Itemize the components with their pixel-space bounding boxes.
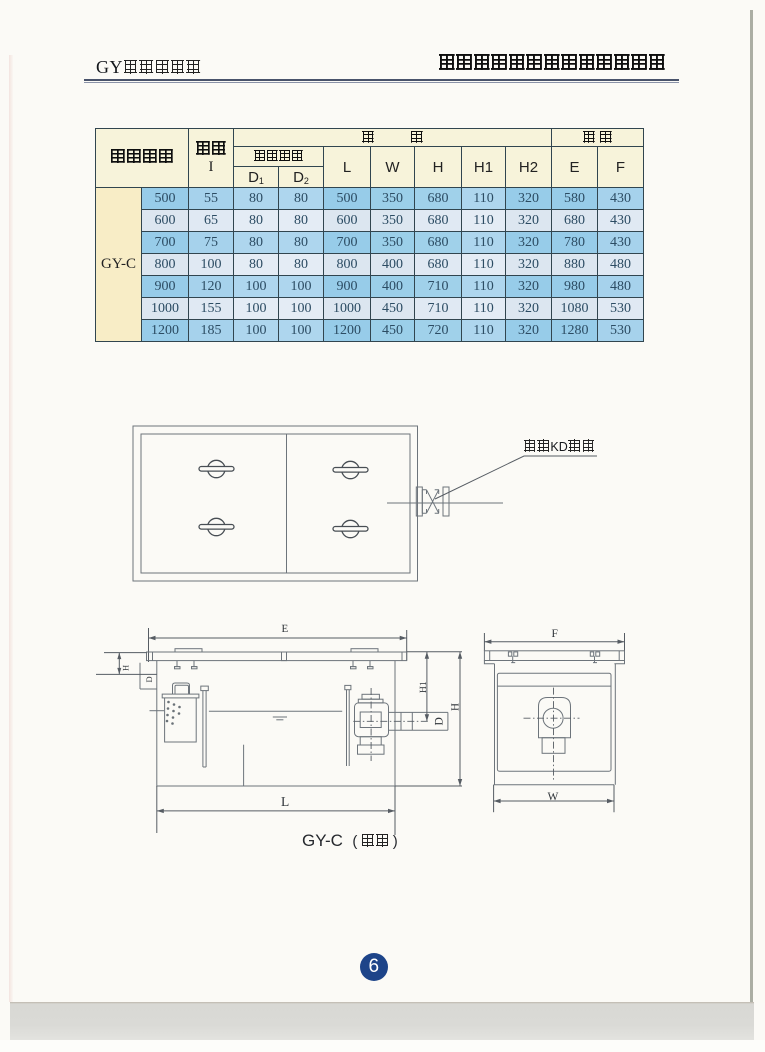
svg-text:L: L	[281, 794, 289, 809]
svg-text:H: H	[450, 703, 462, 711]
svg-text:D: D	[434, 717, 446, 725]
svg-text:D: D	[144, 676, 154, 682]
svg-text:H: H	[121, 665, 131, 671]
svg-text:E: E	[282, 623, 289, 635]
svg-text:W: W	[548, 791, 559, 803]
svg-text:F: F	[552, 628, 558, 640]
svg-text:H1: H1	[419, 681, 429, 693]
